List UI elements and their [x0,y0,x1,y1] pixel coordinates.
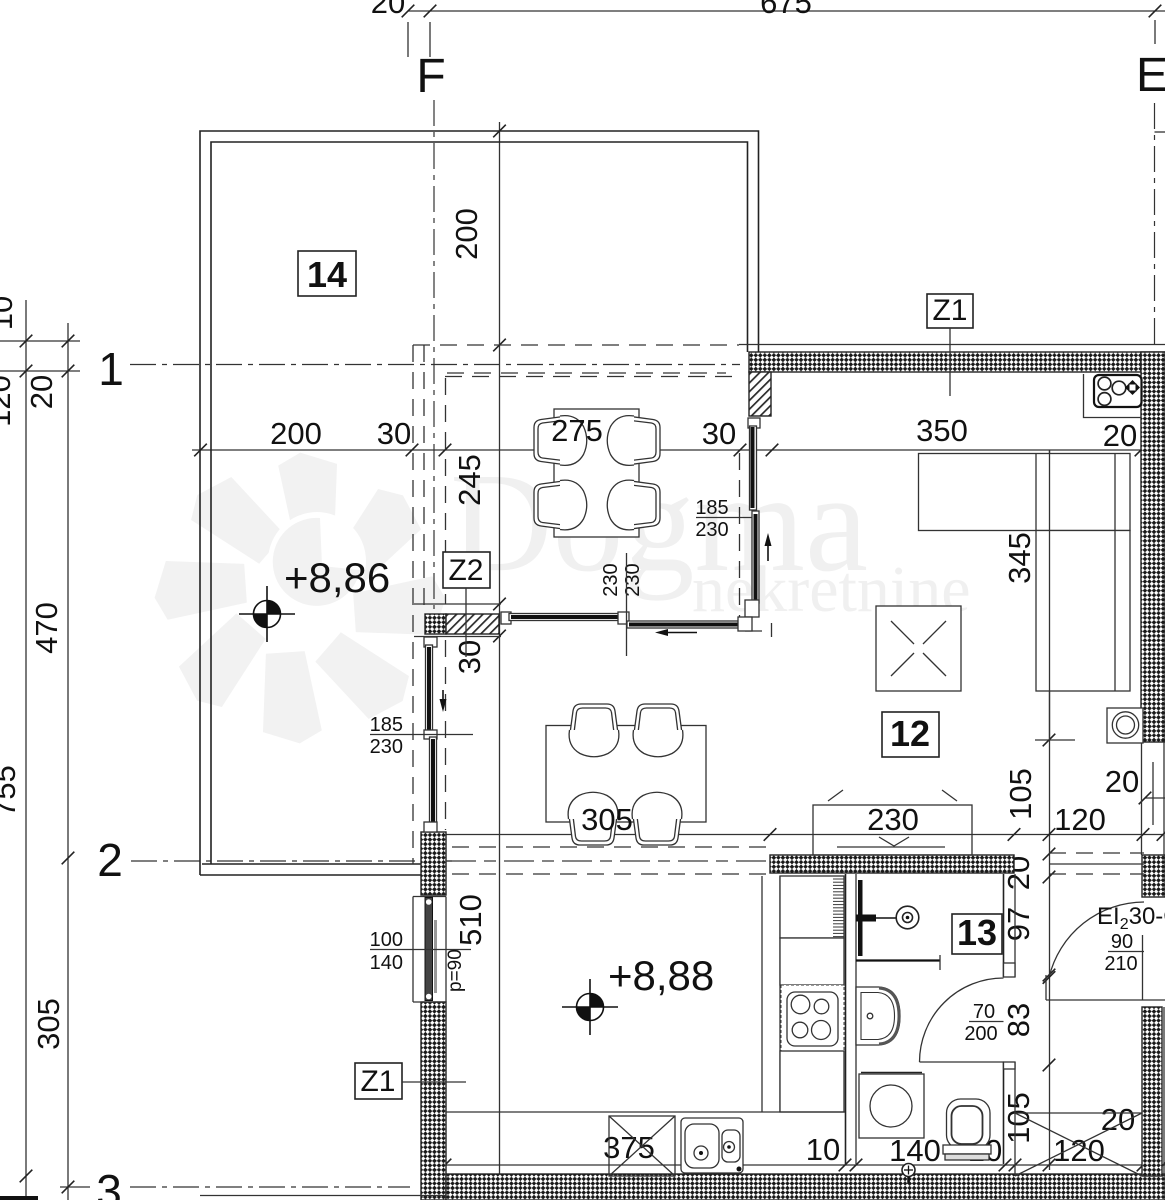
svg-text:140: 140 [370,952,403,974]
svg-text:30: 30 [702,416,736,451]
svg-text:305: 305 [581,802,633,837]
svg-text:30: 30 [452,640,487,674]
svg-text:70: 70 [973,1001,995,1023]
svg-text:120: 120 [0,375,17,427]
svg-text:120: 120 [1053,1133,1105,1168]
svg-text:F: F [416,50,445,103]
svg-text:185: 185 [695,497,728,519]
svg-text:185: 185 [370,714,403,736]
svg-text:30: 30 [377,416,411,451]
svg-text:2: 2 [97,834,123,886]
svg-text:p=90: p=90 [445,949,466,992]
svg-text:20: 20 [1103,418,1137,453]
svg-text:20: 20 [371,0,405,20]
svg-text:510: 510 [453,894,488,946]
svg-text:E: E [1136,49,1165,102]
svg-text:105: 105 [1003,768,1038,820]
svg-text:13: 13 [957,912,997,953]
svg-text:20: 20 [24,375,59,409]
svg-text:345: 345 [1002,532,1037,584]
svg-text:+8,86: +8,86 [284,554,390,601]
svg-text:100: 100 [370,929,403,951]
svg-text:200: 200 [449,208,484,260]
svg-text:755: 755 [0,765,22,817]
svg-text:200: 200 [270,416,322,451]
svg-text:12: 12 [890,713,930,754]
svg-text:350: 350 [916,413,968,448]
svg-text:230: 230 [370,736,403,758]
svg-text:14: 14 [307,254,347,295]
svg-text:245: 245 [452,454,487,506]
svg-text:200: 200 [964,1023,997,1045]
svg-text:105: 105 [1001,1092,1036,1144]
svg-text:120: 120 [1054,802,1106,837]
svg-text:EI230-C: EI230-C [1097,903,1165,933]
svg-text:230: 230 [695,519,728,541]
svg-text:230: 230 [600,563,622,596]
svg-text:10: 10 [806,1132,840,1167]
svg-text:90: 90 [1111,931,1133,953]
svg-text:97: 97 [1001,907,1036,941]
svg-text:1: 1 [98,343,124,395]
svg-text:375: 375 [603,1130,655,1165]
svg-text:Z1: Z1 [360,1065,395,1098]
svg-text:Z1: Z1 [932,294,967,327]
svg-text:210: 210 [1104,953,1137,975]
svg-text:83: 83 [1001,1003,1036,1037]
svg-text:675: 675 [760,0,812,20]
svg-text:230: 230 [622,563,644,596]
svg-text:10: 10 [0,296,19,330]
svg-text:3: 3 [96,1165,122,1200]
svg-text:20: 20 [1105,764,1139,799]
svg-text:470: 470 [29,602,64,654]
svg-text:230: 230 [867,802,919,837]
svg-text:Z2: Z2 [448,554,483,587]
svg-text:305: 305 [31,998,66,1050]
svg-text:275: 275 [551,413,603,448]
svg-text:+8,88: +8,88 [608,952,714,999]
